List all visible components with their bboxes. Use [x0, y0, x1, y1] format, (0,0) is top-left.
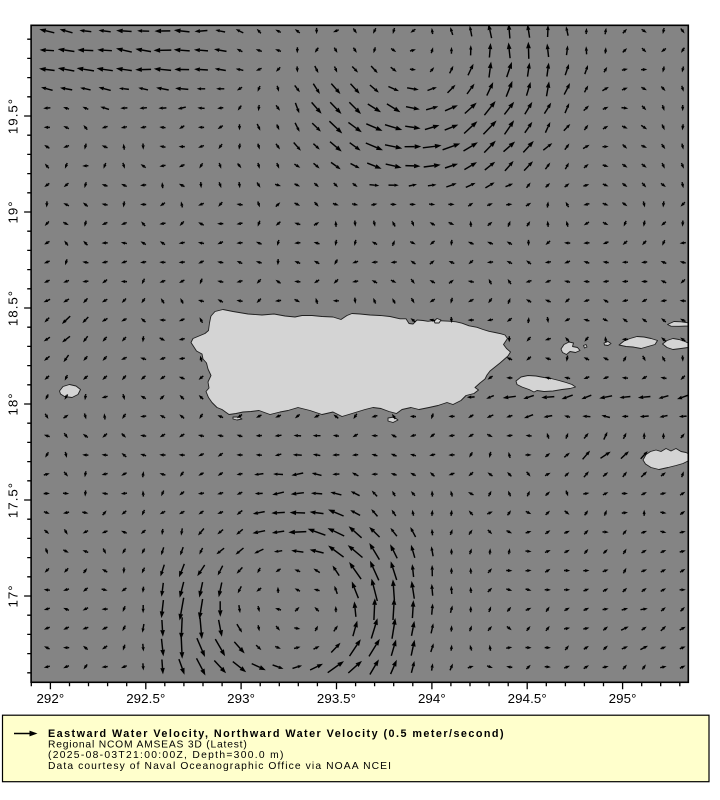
svg-text:Data courtesy of Naval Oceanog: Data courtesy of Naval Oceanographic Off… [48, 761, 392, 772]
svg-text:295°: 295° [609, 691, 637, 706]
svg-text:19°: 19° [6, 200, 21, 223]
svg-text:19.5°: 19.5° [6, 98, 21, 134]
svg-text:Regional NCOM AMSEAS 3D (Lates: Regional NCOM AMSEAS 3D (Latest) [48, 740, 248, 751]
svg-text:294°: 294° [418, 691, 446, 706]
svg-text:292.5°: 292.5° [126, 691, 165, 706]
svg-text:18.5°: 18.5° [6, 290, 21, 326]
svg-text:Eastward Water Velocity, North: Eastward Water Velocity, Northward Water… [48, 728, 505, 740]
svg-text:292°: 292° [36, 691, 64, 706]
svg-text:17.5°: 17.5° [6, 482, 21, 518]
svg-text:293°: 293° [227, 691, 255, 706]
svg-text:293.5°: 293.5° [317, 691, 356, 706]
svg-text:17°: 17° [6, 584, 21, 607]
svg-text:(2025-08-03T21:00:00Z, Depth=3: (2025-08-03T21:00:00Z, Depth=300.0 m) [48, 750, 285, 761]
svg-text:294.5°: 294.5° [508, 691, 547, 706]
svg-text:18°: 18° [6, 392, 21, 415]
